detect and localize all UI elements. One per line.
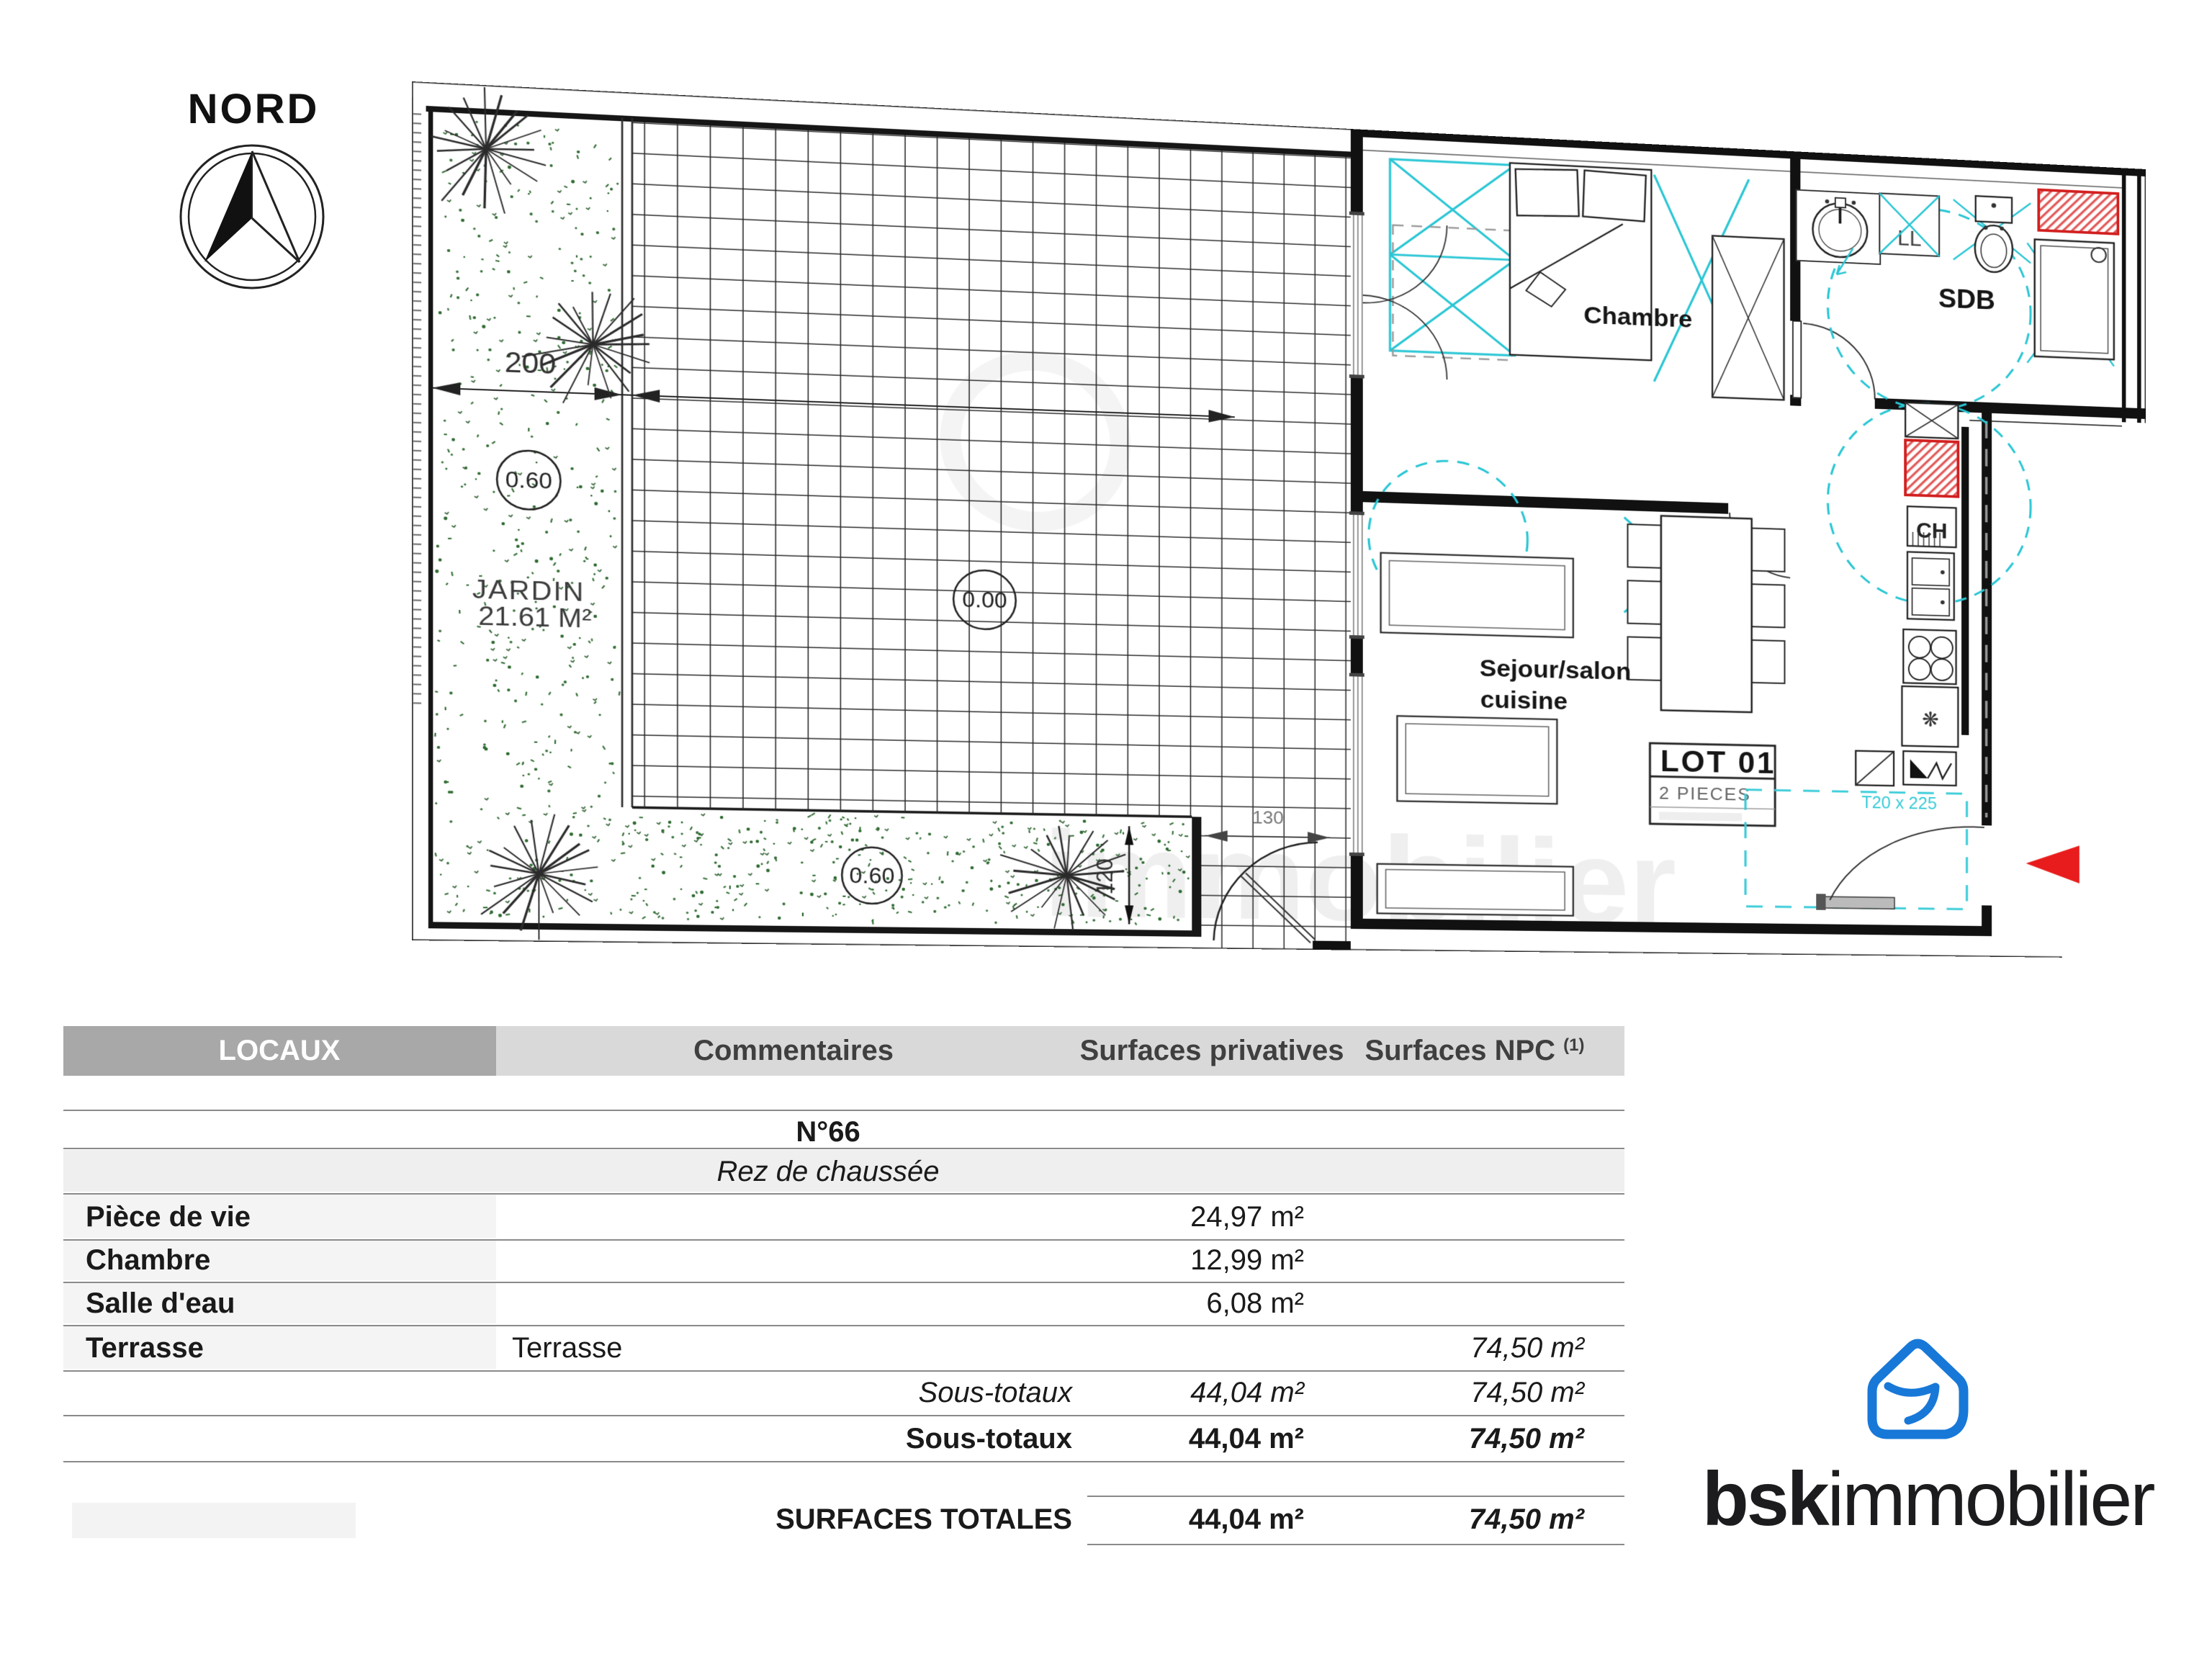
svg-text:2 PIECES: 2 PIECES [1659, 783, 1751, 804]
svg-text:0.60: 0.60 [850, 863, 895, 888]
svg-text:0.00: 0.00 [962, 587, 1007, 613]
svg-text:SDB: SDB [1938, 283, 1995, 315]
svg-text:21.61 M²: 21.61 M² [478, 602, 591, 634]
svg-text:0.60: 0.60 [505, 467, 552, 493]
svg-text:cuisine: cuisine [1480, 686, 1568, 715]
svg-text:LOT 01: LOT 01 [1660, 745, 1776, 780]
svg-text:CH: CH [1916, 518, 1947, 544]
svg-text:T20 x 225: T20 x 225 [1861, 793, 1937, 813]
svg-text:Sejour/salon: Sejour/salon [1480, 655, 1632, 685]
svg-text:❋: ❋ [1922, 708, 1939, 731]
svg-text:LL: LL [1897, 226, 1921, 251]
svg-text:130: 130 [1252, 807, 1284, 828]
svg-text:Chambre: Chambre [1583, 302, 1692, 333]
